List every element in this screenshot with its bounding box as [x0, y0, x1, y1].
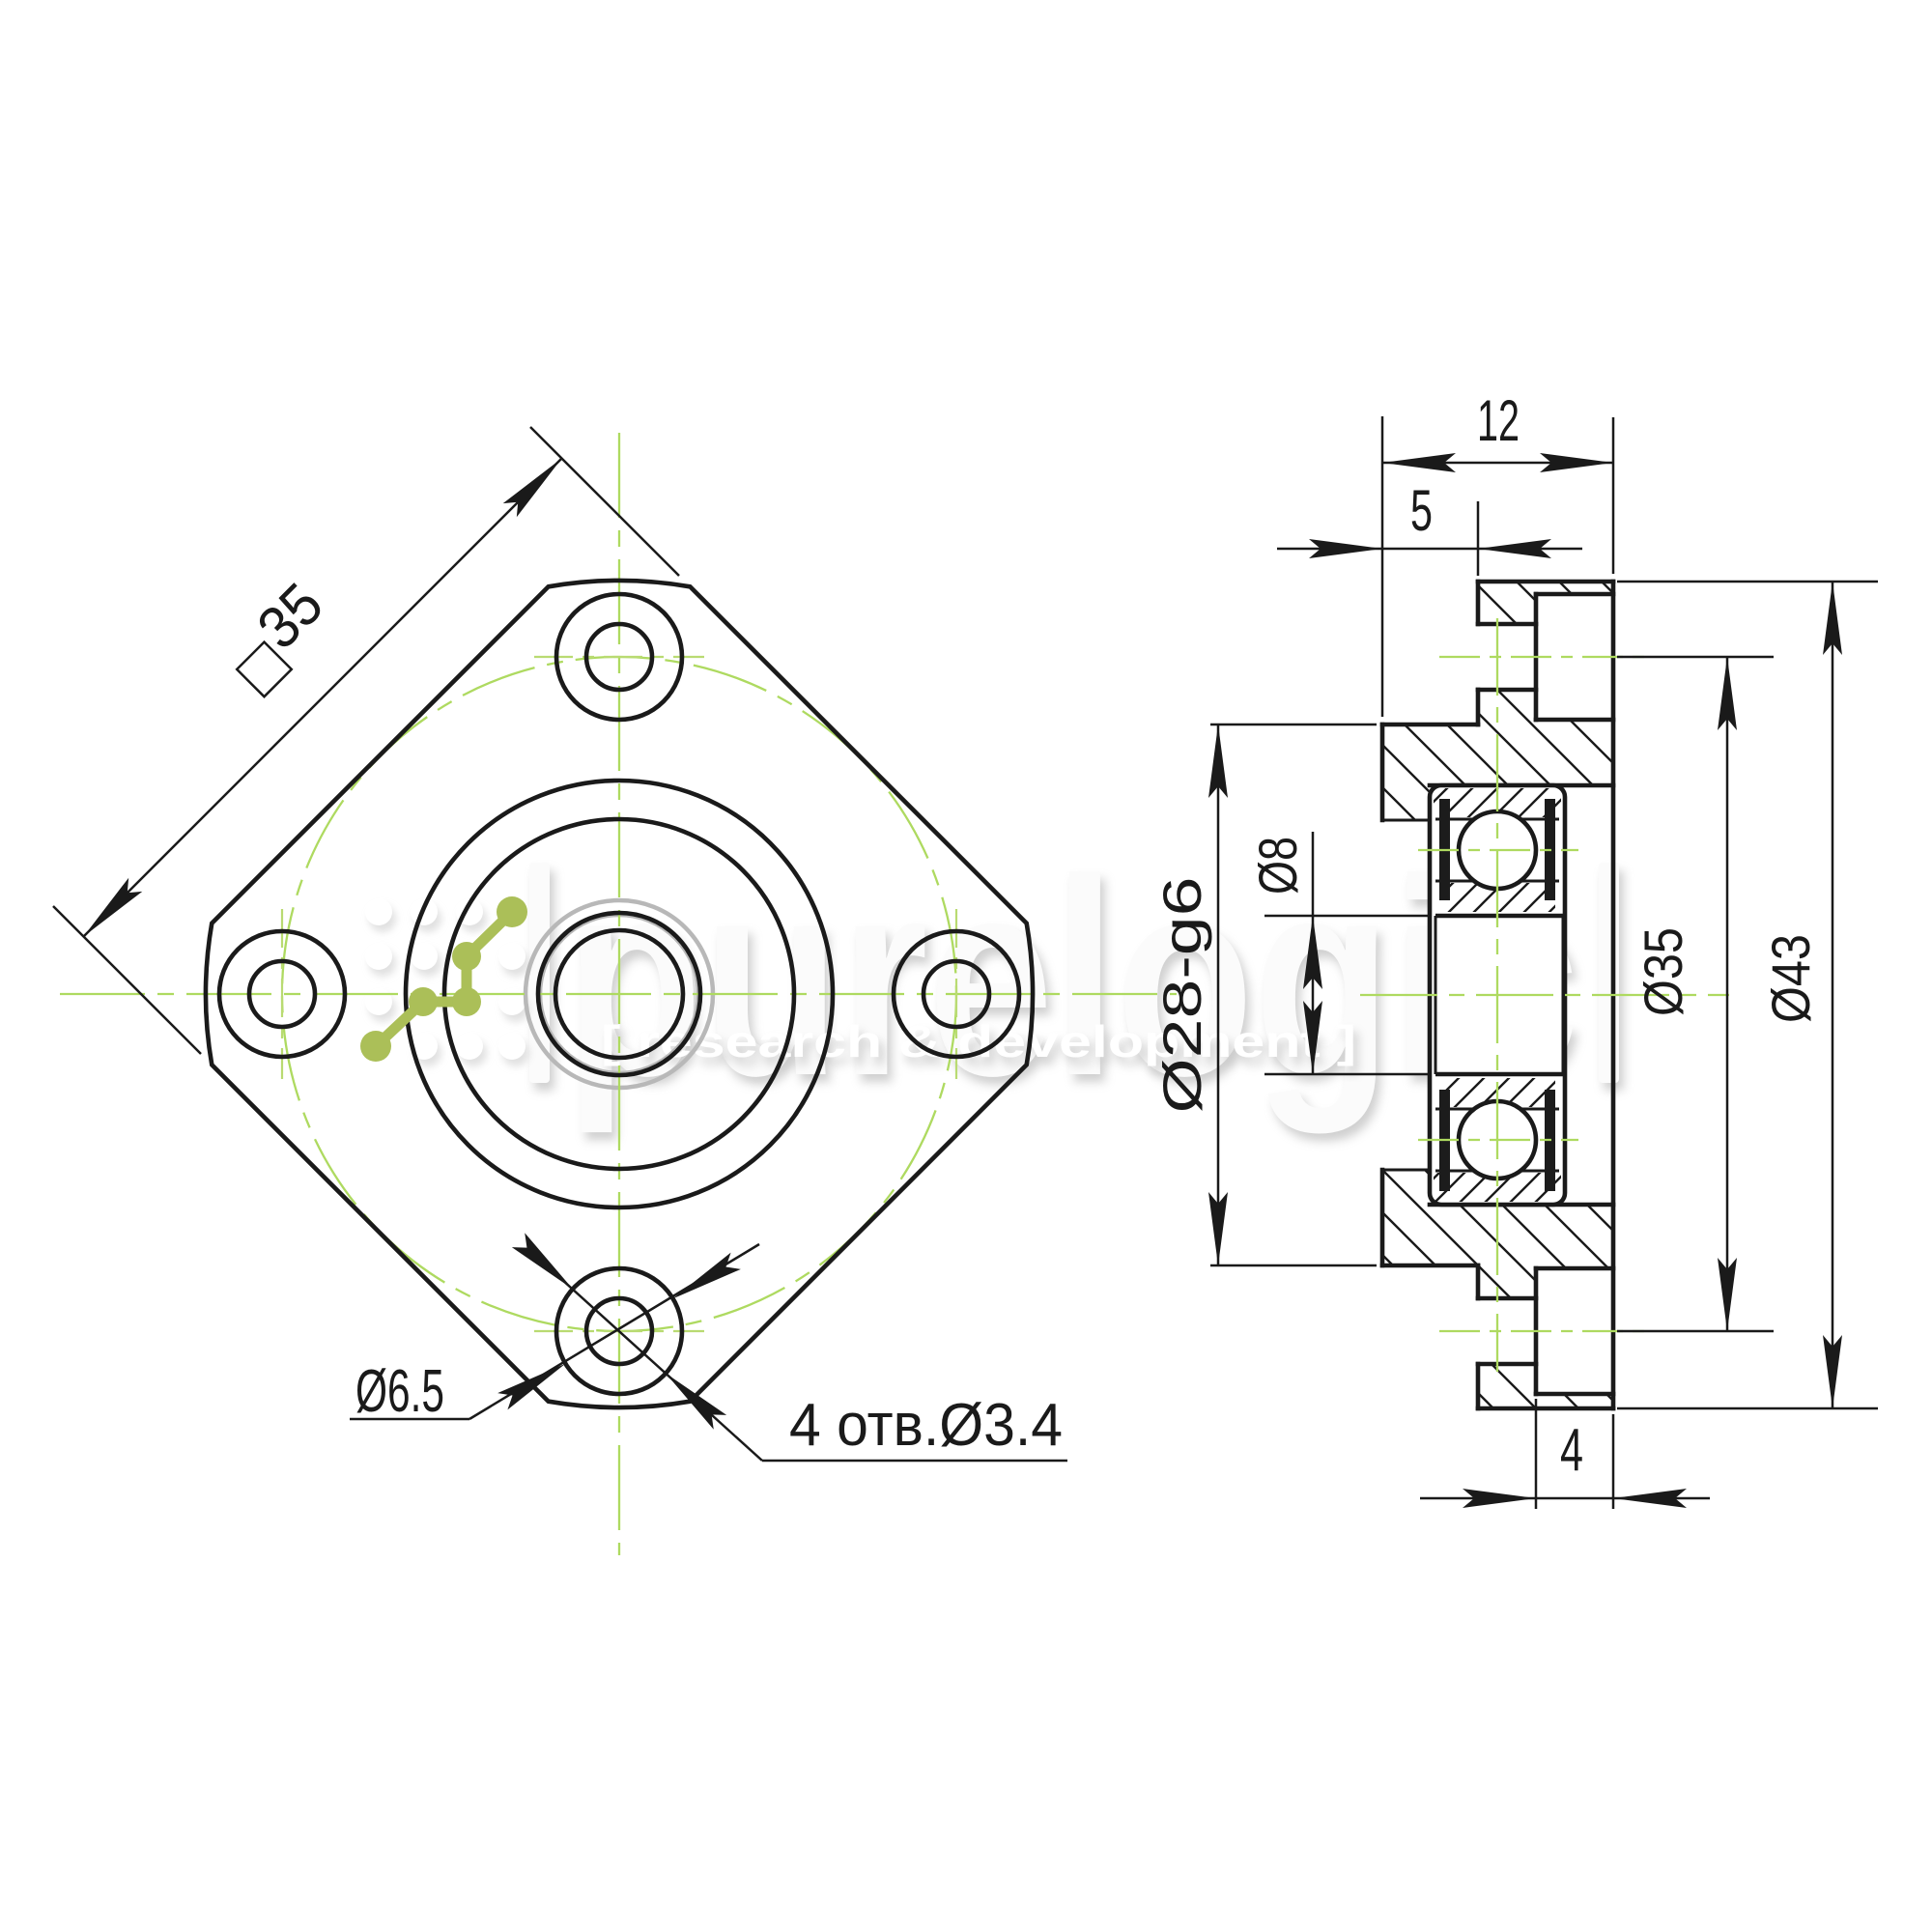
svg-text:Ø8: Ø8: [1247, 837, 1308, 895]
svg-text:Ø6.5: Ø6.5: [355, 1358, 444, 1425]
svg-text:Ø43: Ø43: [1760, 934, 1821, 1023]
svg-text:5: 5: [1410, 478, 1433, 543]
svg-text:12: 12: [1477, 388, 1520, 453]
svg-text:[ research & development ]: [ research & development ]: [601, 1016, 1356, 1066]
svg-text:Ø28-g6: Ø28-g6: [1151, 877, 1212, 1114]
svg-text:4 отв.Ø3.4: 4 отв.Ø3.4: [789, 1392, 1063, 1459]
svg-text:4: 4: [1560, 1417, 1583, 1484]
svg-text:Ø35: Ø35: [1633, 927, 1693, 1016]
svg-text:purelogic: purelogic: [565, 821, 1579, 1135]
